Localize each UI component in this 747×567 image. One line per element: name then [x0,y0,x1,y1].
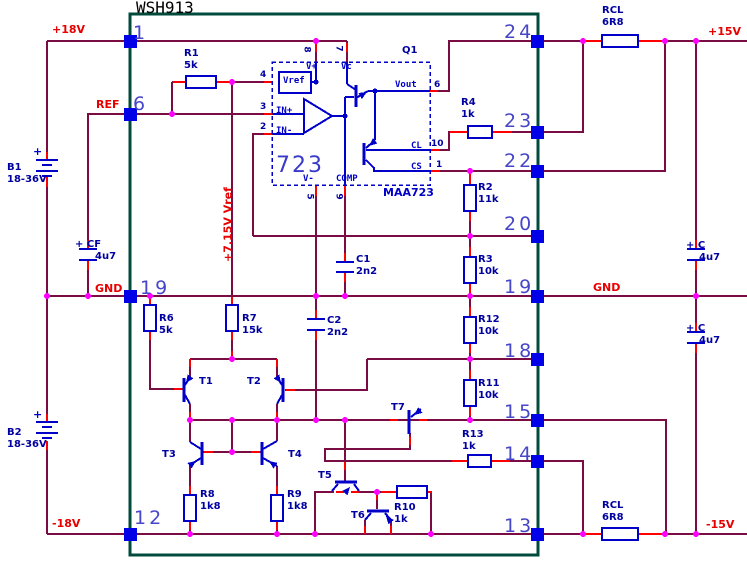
ic-pin3-number: 3 [260,103,266,112]
ic-pin6-number: 6 [434,81,440,90]
junction-dot [187,531,193,537]
ic-pin1-number: 1 [436,161,442,170]
junction-dot [662,531,668,537]
net-label-plus15v: +15V [708,26,741,37]
junction-dot [313,38,319,44]
r10-value: 1k [394,515,408,525]
r6-value: 5k [159,326,173,336]
q1-ref: Q1 [402,46,417,56]
resistor-r4 [468,126,492,138]
r7-ref: R7 [242,314,257,324]
t1-ref: T1 [199,377,213,387]
schematic-canvas: WSH913 +18V REF GND -18V +15V GND -15V +… [0,0,747,567]
junction-dot [313,417,319,423]
pin-14: 14 [504,445,534,464]
ic-vplus-label: V+ [306,63,317,72]
junction-dot [693,293,699,299]
junction-dot [44,293,50,299]
junction-dot [374,489,380,495]
pin-23: 23 [504,112,534,131]
ic-part-number: MAA723 [383,187,434,198]
ic-junction-dot [314,80,319,85]
wire [538,41,665,171]
wire [538,41,583,132]
wire [150,331,184,389]
component-lead [185,395,190,404]
ic-cl-label: CL [411,142,422,151]
r2-ref: R2 [478,183,493,193]
r10-ref: R10 [394,503,416,513]
ic-comp-label: COMP [336,175,358,184]
rcl-bottom-ref: RCL [602,501,623,511]
ic-vc-label: Vc [341,63,352,72]
junction-dot [693,531,699,537]
pin-13: 13 [504,517,534,536]
module-border [130,14,538,555]
junction-dot [274,417,280,423]
r1-ref: R1 [184,49,199,59]
r13-value: 1k [462,442,476,452]
module-title: WSH913 [136,0,194,16]
junction-dot [312,531,318,537]
t6-ref: T6 [351,511,365,521]
junction-dot [467,356,473,362]
component-lead [332,484,338,491]
r11-ref: R11 [478,379,500,389]
component-lead [366,160,374,168]
r11-value: 10k [478,391,499,401]
b1-plus-sign: + [33,146,42,157]
r9-value: 1k8 [287,502,308,512]
pin-18: 18 [504,342,534,361]
net-label-vref-rail: +7.15V Vref [223,185,234,265]
cf-value: 4u7 [95,252,116,262]
pin-1: 1 [133,24,148,43]
ic-junction-dot [343,114,348,119]
pin-19-right: 19 [504,278,534,297]
t4-ref: T4 [288,450,302,460]
r1-value: 5k [184,61,198,71]
transistor-arrow-icon [342,485,353,496]
ic-opamp-triangle [304,99,332,133]
c1-value: 2n2 [356,267,377,277]
ic-pin7-number: 7 [334,45,343,51]
net-label-minus18v: -18V [52,518,80,529]
module-pin-square [124,290,137,303]
ic-vout-label: Vout [395,81,417,90]
component-lead [263,441,277,449]
ic-pin4-number: 4 [260,71,266,80]
pin-19-left: 19 [140,279,170,298]
resistor-r3 [464,257,476,283]
r9-ref: R9 [287,490,302,500]
c-bottom-value: 4u7 [699,336,720,346]
junction-dot [229,79,235,85]
junction-dot [693,38,699,44]
rcl-bottom-value: 6R8 [602,513,624,523]
r2-value: 11k [478,195,499,205]
junction-dot [342,417,348,423]
t5-ref: T5 [318,471,332,481]
r6-ref: R6 [159,314,174,324]
resistor-r13 [468,455,491,467]
pin-24: 24 [504,23,534,42]
junction-dot [428,531,434,537]
junction-dot [313,293,319,299]
resistor-r7 [226,305,238,331]
junction-dot [229,417,235,423]
c-bottom-ref: + C [686,324,705,334]
junction-dot [229,356,235,362]
pin-6: 6 [133,95,148,114]
wire [538,461,583,534]
junction-dot [580,38,586,44]
net-label-ref: REF [96,99,120,110]
junction-dot [187,417,193,423]
rcl-top-value: 6R8 [602,18,624,28]
ic-pin5-number: 5 [305,193,314,199]
pin-20: 20 [504,215,534,234]
ic-vref-box-label: Vref [283,77,305,86]
resistor-r9 [271,495,283,521]
b1-ref: B1 [7,163,22,173]
t2-ref: T2 [247,377,261,387]
pin-22: 22 [504,152,534,171]
b1-value: 18-36V [7,175,47,185]
c-top-value: 4u7 [699,253,720,263]
resistor-r12 [464,317,476,343]
resistor-r10 [397,486,427,498]
wire [88,114,130,249]
wire [253,134,273,236]
wire [430,41,538,91]
ic-in-minus-label: IN- [276,127,292,136]
r12-ref: R12 [478,315,500,325]
r7-value: 15k [242,326,263,336]
r13-ref: R13 [462,430,484,440]
junction-dot [342,293,348,299]
c2-ref: C2 [327,316,341,326]
b2-value: 18-36V [7,440,47,450]
ic-pin10-number: 10 [431,140,444,149]
junction-dot [662,38,668,44]
r8-ref: R8 [200,490,215,500]
junction-dot [169,111,175,117]
r12-value: 10k [478,327,499,337]
wire [325,433,468,461]
resistor-rcl-top [602,35,638,47]
junction-dot [229,449,235,455]
ic-in-plus-label: IN+ [276,107,292,116]
net-label-minus15v: -15V [706,519,734,530]
junction-dot [467,417,473,423]
t3-ref: T3 [162,450,176,460]
r4-ref: R4 [461,98,476,108]
b2-ref: B2 [7,428,22,438]
wire [285,359,367,390]
r3-ref: R3 [478,255,493,265]
r4-value: 1k [461,110,475,120]
net-label-plus18v: +18V [52,24,85,35]
pin-12: 12 [134,509,164,528]
resistor-r8 [184,495,196,521]
net-label-gnd-right: GND [593,282,620,293]
component-lead [190,442,201,449]
r8-value: 1k8 [200,502,221,512]
component-lead [277,395,282,404]
ic-pin8-number: 8 [302,46,311,52]
junction-dot [467,168,473,174]
resistor-r6 [144,305,156,331]
c1-ref: C1 [356,255,370,265]
wire [315,492,334,534]
ic-junction-dot [373,89,378,94]
resistor-rcl-bottom [602,528,638,540]
ic-pin2-number: 2 [260,123,266,132]
junction-dot [580,531,586,537]
module-pin-square [124,528,137,541]
pin-15: 15 [504,403,534,422]
cf-ref: + CF [75,240,101,250]
resistor-r1 [186,76,216,88]
transistor-arrow-icon [267,458,278,468]
component-lead [354,484,359,491]
resistor-r11 [464,380,476,406]
ic-723-label: 723 [276,155,324,177]
junction-dot [85,293,91,299]
transistor-arrow-icon [383,514,394,525]
junction-dot [467,233,473,239]
c-top-ref: + C [686,241,705,251]
b2-plus-sign: + [33,409,42,420]
r3-value: 10k [478,267,499,277]
net-label-gnd-left: GND [95,283,122,294]
t7-ref: T7 [391,403,405,413]
resistor-r2 [464,185,476,211]
junction-dot [274,531,280,537]
ic-cs-label: CS [411,163,422,172]
ic-pin9-number: 9 [334,193,343,199]
c2-value: 2n2 [327,328,348,338]
rcl-top-ref: RCL [602,6,623,16]
component-lead [365,513,371,520]
junction-dot [467,293,473,299]
